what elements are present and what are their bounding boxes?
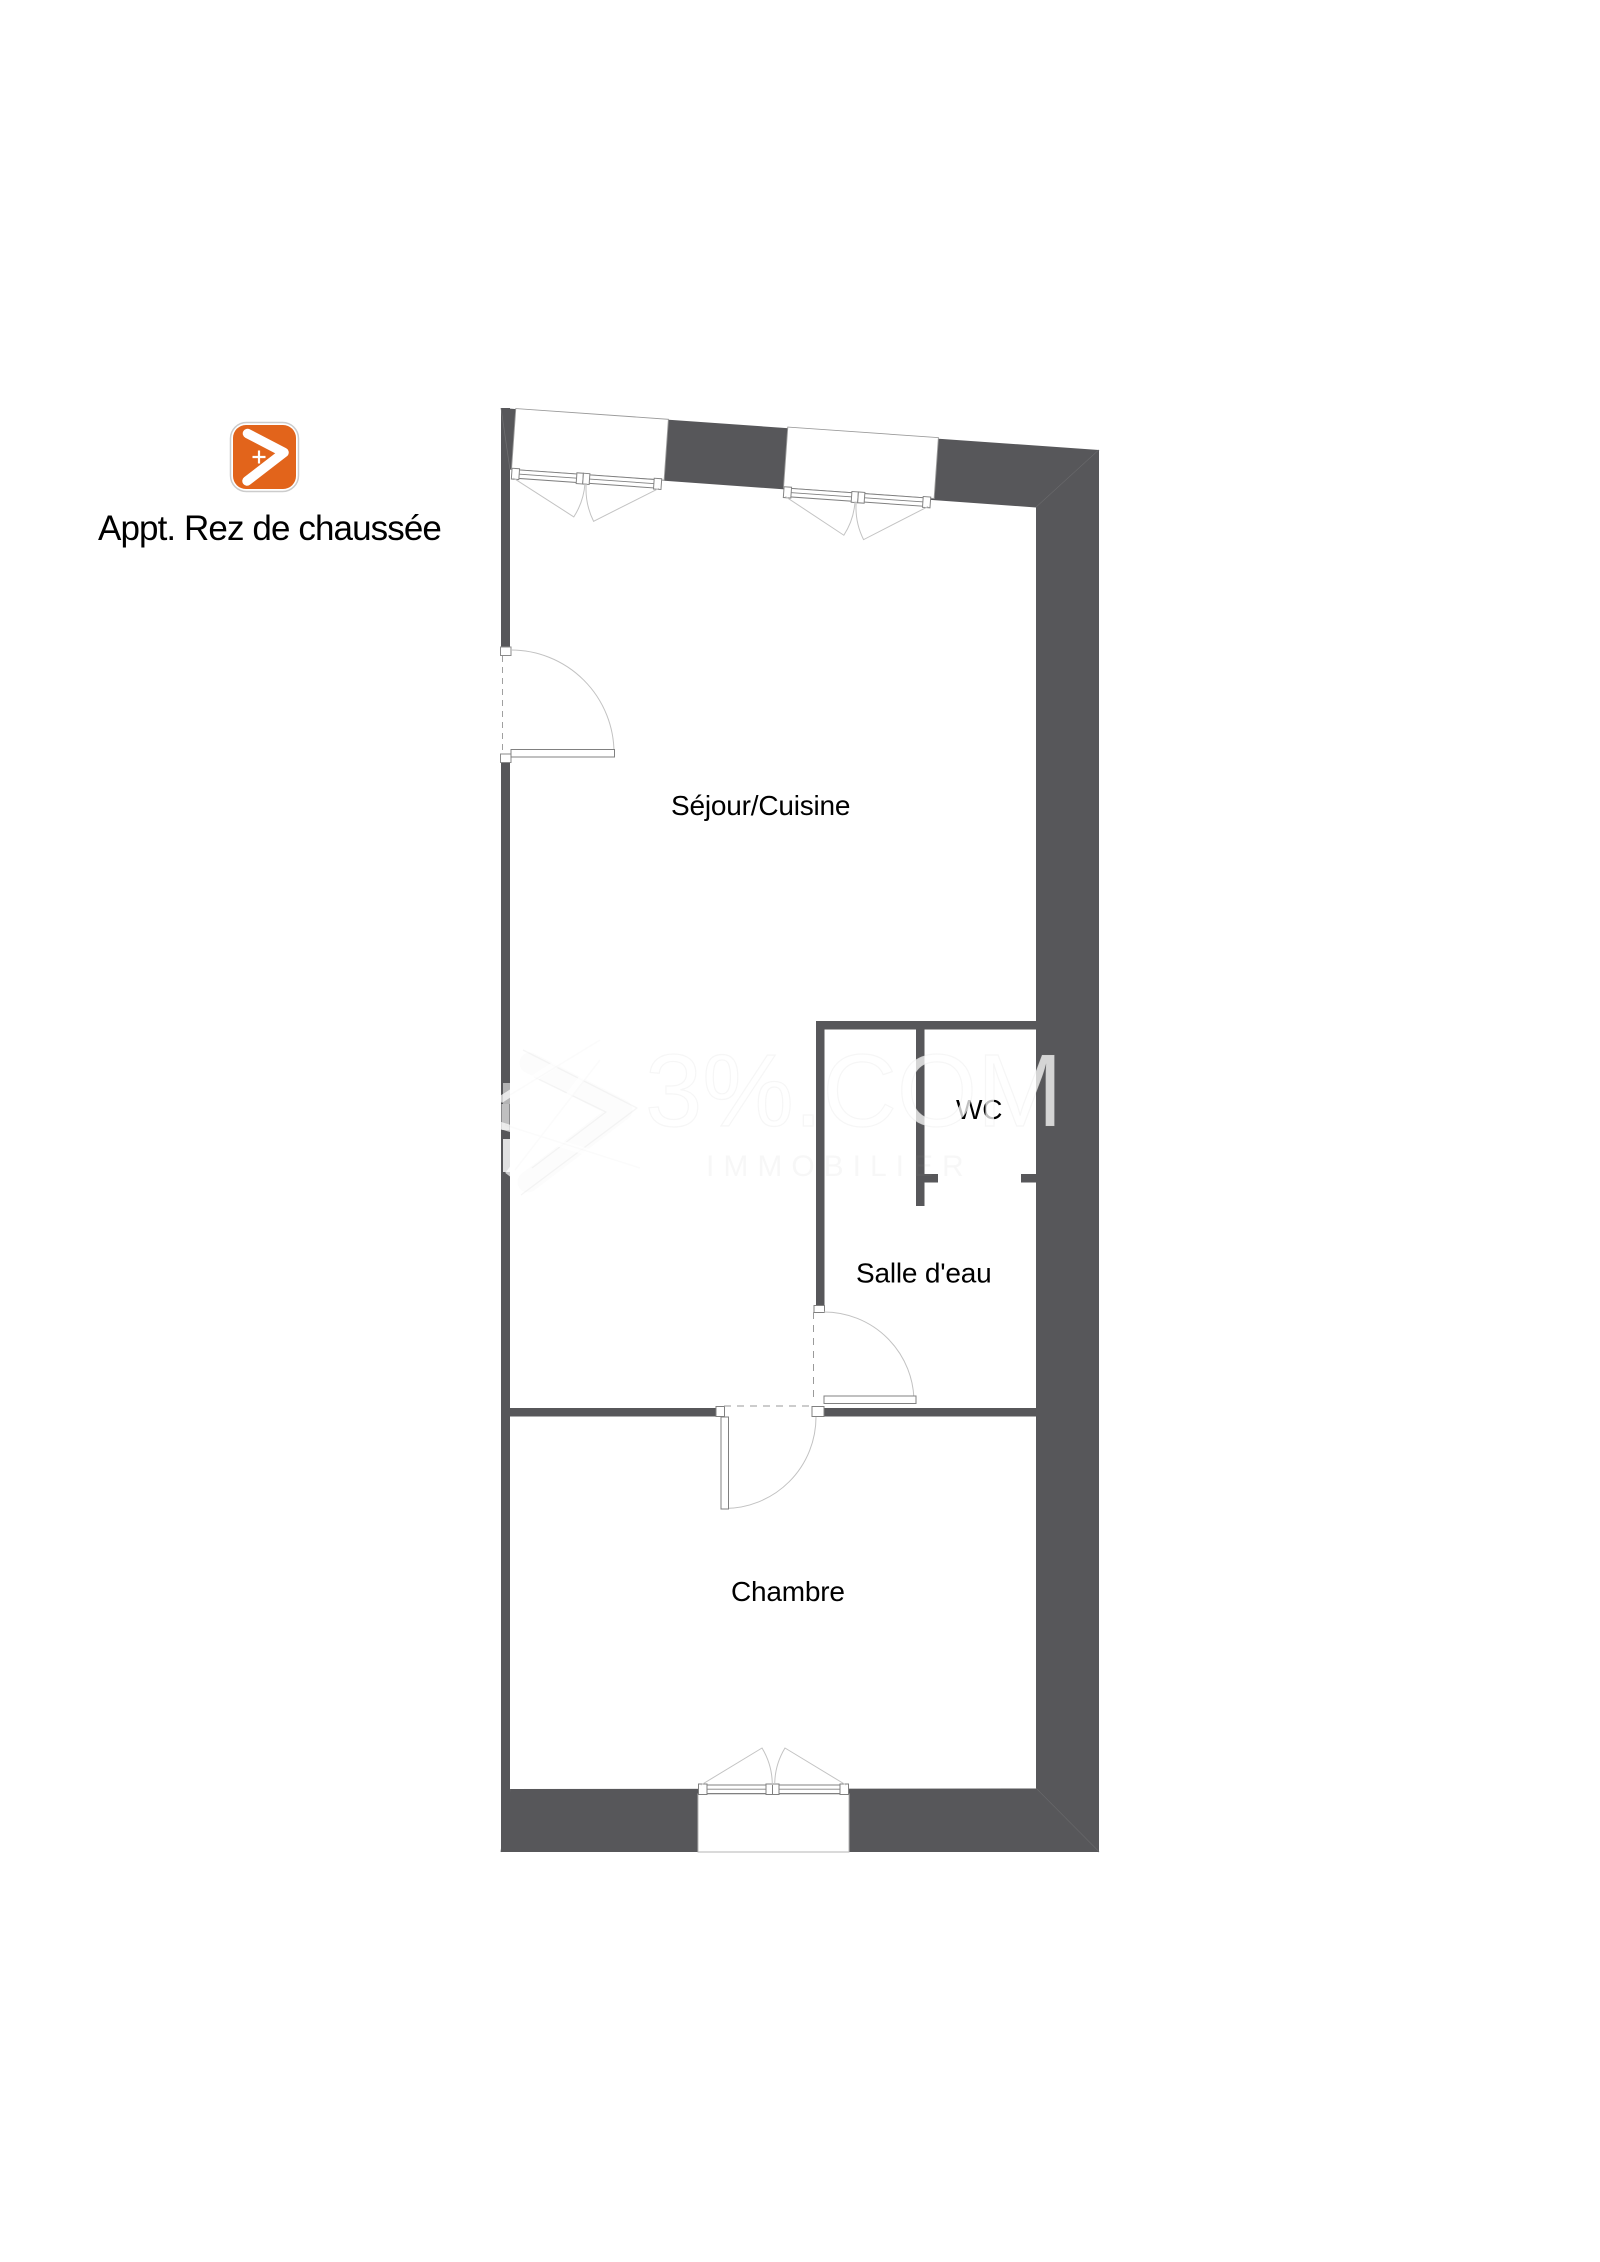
svg-text:Séjour/Cuisine: Séjour/Cuisine — [671, 790, 850, 821]
svg-text:Chambre: Chambre — [731, 1576, 845, 1607]
svg-text:Appt. Rez de chaussée: Appt. Rez de chaussée — [98, 509, 441, 548]
svg-text:Salle d'eau: Salle d'eau — [856, 1258, 991, 1289]
svg-text:IMMOBILIER: IMMOBILIER — [706, 1150, 973, 1183]
svg-text:3%.COM: 3%.COM — [645, 1033, 1063, 1148]
